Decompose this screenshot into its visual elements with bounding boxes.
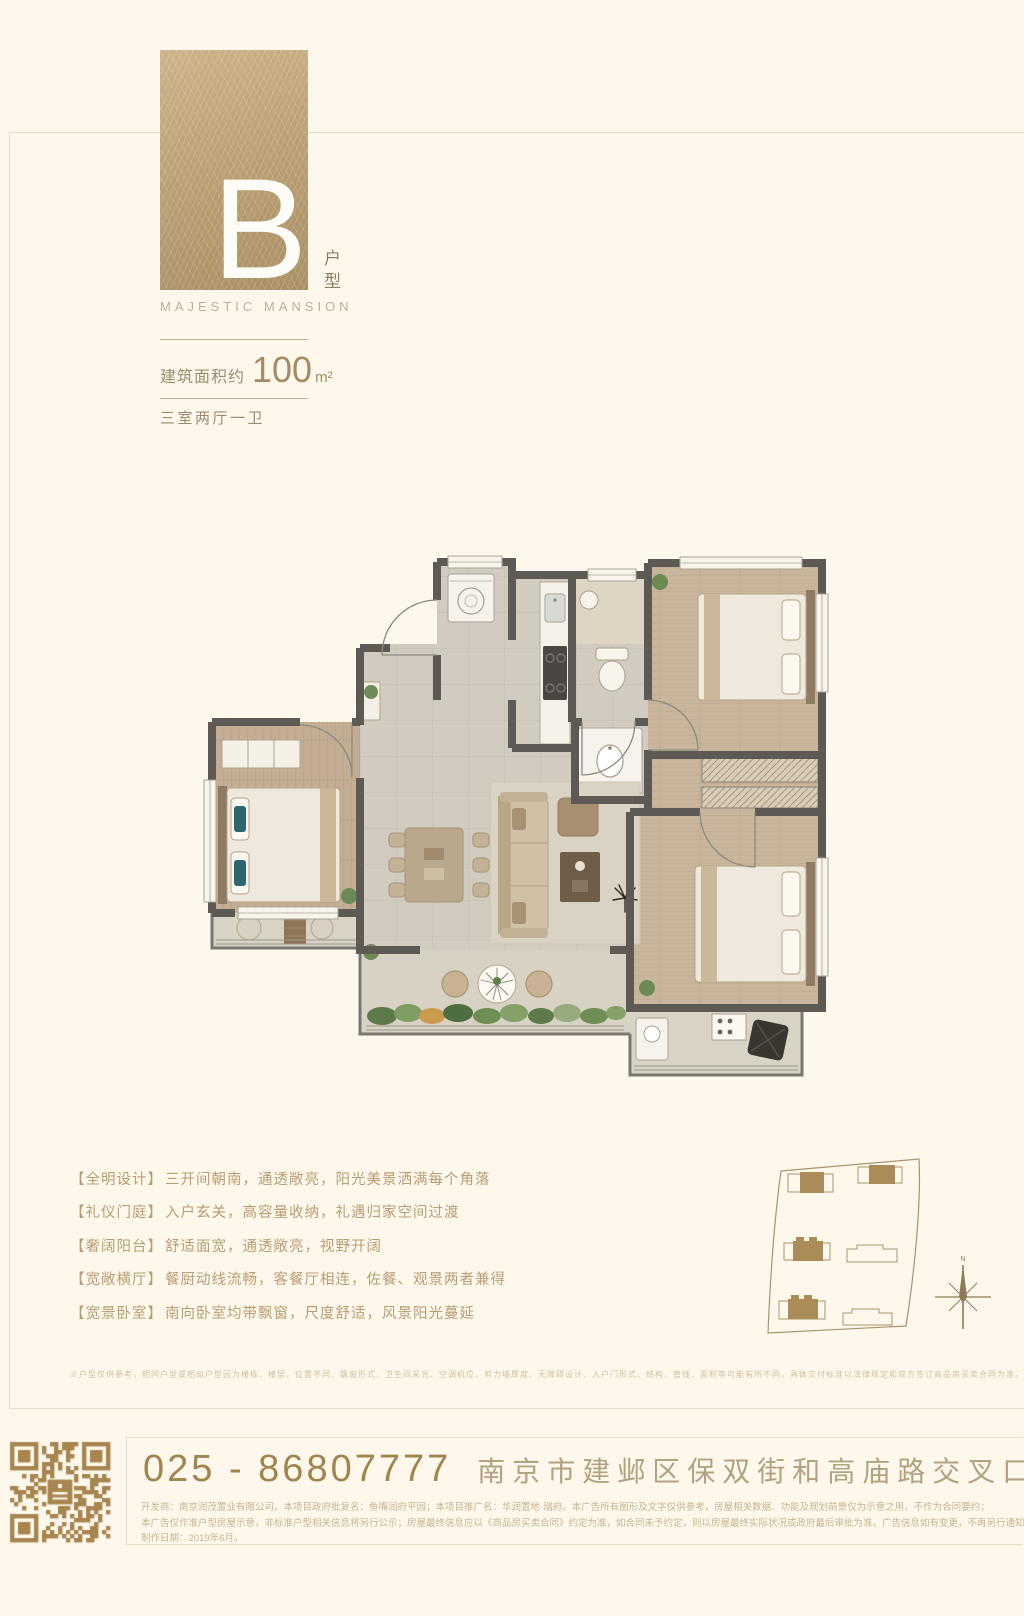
fineprint-line: 开发商：南京润茂置业有限公司。本项目政府批复名：鱼嘴润府平园；本项目推广名：华润… bbox=[141, 1500, 1019, 1516]
feature-tag: 【宽敞横厅】 bbox=[70, 1272, 163, 1288]
entry-console bbox=[362, 682, 380, 720]
closet-1 bbox=[702, 758, 818, 782]
phone-number: 025 - 86807777 bbox=[143, 1448, 451, 1491]
area-value: 100 bbox=[252, 352, 312, 388]
building-highlighted bbox=[858, 1165, 902, 1184]
closet-2 bbox=[702, 787, 818, 808]
building-outline bbox=[847, 1245, 897, 1262]
contact-row: 025 - 86807777 南京市建邺区保双街和高庙路交叉口 bbox=[127, 1438, 1023, 1491]
compass-icon: N bbox=[935, 1256, 991, 1329]
legal-fineprint: 开发商：南京润茂置业有限公司。本项目政府批复名：鱼嘴润府平园；本项目推广名：华润… bbox=[127, 1495, 1023, 1547]
type-disclaimer: ※户型仅供参考，相同户型或相似户型因为楼栋、楼层、位置不同、飘窗形式、卫生间采光… bbox=[70, 1369, 1022, 1380]
building-outline bbox=[843, 1309, 892, 1325]
fineprint-line: 制作日期：2019年6月。 bbox=[141, 1531, 1019, 1547]
kitchen-counter bbox=[540, 582, 570, 744]
fineprint-line: 本广告仅作准户型房屋示意，非标准户型相关信息将另行公示；房屋最终信息应以《商品房… bbox=[141, 1516, 1019, 1532]
feature-item: 【礼仪门庭】入户玄关，高容量收纳，礼遇归家空间过渡 bbox=[70, 1201, 506, 1234]
site-plan: N bbox=[735, 1135, 1024, 1340]
feature-tag: 【宽景卧室】 bbox=[70, 1306, 163, 1322]
divider-below-area bbox=[160, 398, 308, 399]
feature-text: 南向卧室均带飘窗，尺度舒适，风景阳光蔓延 bbox=[165, 1306, 475, 1322]
compass-north-label: N bbox=[960, 1256, 965, 1263]
living-set bbox=[490, 782, 640, 944]
feature-tag: 【全明设计】 bbox=[70, 1172, 163, 1188]
unit-letter: B bbox=[212, 158, 307, 301]
divider-above-area bbox=[160, 339, 308, 340]
address-text: 南京市建邺区保双街和高庙路交叉口 bbox=[477, 1450, 1024, 1490]
feature-tag: 【礼仪门庭】 bbox=[70, 1205, 163, 1221]
feature-text: 餐厨动线流畅，客餐厅相连，佐餐、观景两者兼得 bbox=[165, 1272, 506, 1288]
bath-sink bbox=[580, 591, 598, 609]
feature-item: 【奢阔阳台】舒适面宽，通透敞亮，视野开阔 bbox=[70, 1235, 506, 1268]
poster-page: { "brand": { "letter": "B", "unit_type":… bbox=[0, 0, 1024, 1616]
frame-left-line bbox=[9, 132, 10, 1409]
feature-item: 【全明设计】三开间朝南，通透敞亮，阳光美景洒满每个角落 bbox=[70, 1168, 506, 1201]
dining-set bbox=[389, 828, 489, 902]
floor-plan bbox=[190, 535, 840, 1095]
contact-box: 025 - 86807777 南京市建邺区保双街和高庙路交叉口 开发商：南京润茂… bbox=[126, 1437, 1023, 1545]
area-label: 建筑面积约 bbox=[160, 363, 245, 387]
feature-item: 【宽敞横厅】餐厨动线流畅，客餐厅相连，佐餐、观景两者兼得 bbox=[70, 1268, 506, 1301]
unit-type-label: 户型 bbox=[318, 249, 343, 295]
bed-left bbox=[218, 786, 357, 904]
building-highlighted bbox=[784, 1237, 830, 1261]
feature-item: 【宽景卧室】南向卧室均带飘窗，尺度舒适，风景阳光蔓延 bbox=[70, 1302, 506, 1335]
building-highlighted bbox=[788, 1172, 833, 1193]
feature-text: 舒适面宽，通透敞亮，视野开阔 bbox=[165, 1239, 382, 1255]
toilet bbox=[596, 648, 628, 691]
feature-text: 入户玄关，高容量收纳，礼遇归家空间过渡 bbox=[165, 1205, 460, 1221]
building-highlighted bbox=[779, 1295, 825, 1319]
frame-bottom-line bbox=[9, 1408, 1024, 1409]
area-row: 建筑面积约 100 m² bbox=[160, 352, 333, 388]
deco-pillow bbox=[747, 1019, 790, 1062]
qr-code bbox=[6, 1438, 114, 1546]
feature-text: 三开间朝南，通透敞亮，阳光美景洒满每个角落 bbox=[165, 1172, 491, 1188]
area-unit: m² bbox=[315, 369, 333, 386]
feature-tag: 【奢阔阳台】 bbox=[70, 1239, 163, 1255]
features-list: 【全明设计】三开间朝南，通透敞亮，阳光美景洒满每个角落 【礼仪门庭】入户玄关，高… bbox=[70, 1168, 506, 1335]
wardrobe-left bbox=[222, 740, 300, 768]
site-buildings bbox=[779, 1165, 902, 1325]
rooms-label: 三室两厅一卫 bbox=[160, 407, 265, 428]
qr-code-canvas bbox=[6, 1438, 114, 1546]
washer bbox=[448, 574, 494, 622]
